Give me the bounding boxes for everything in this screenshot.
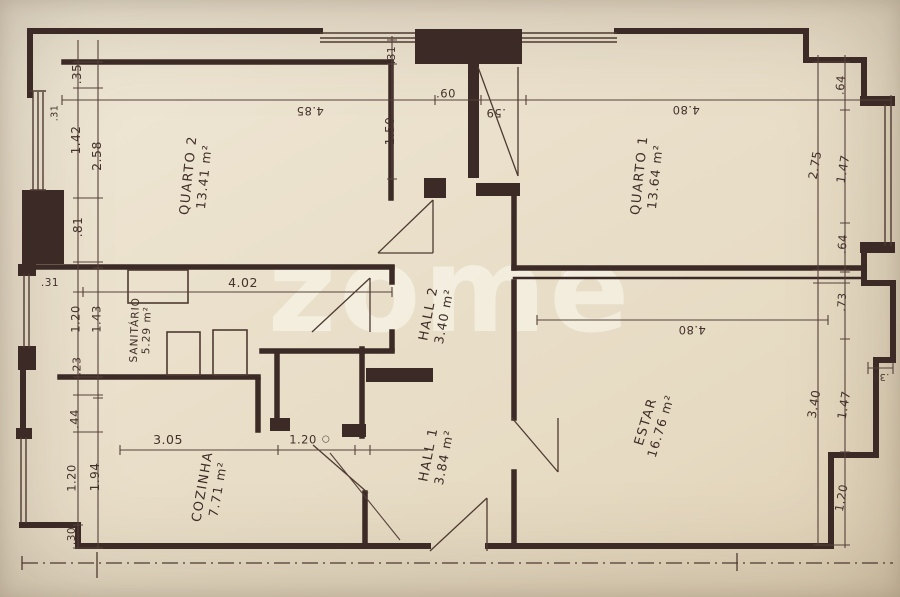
dim-mid-31: .31 — [387, 46, 398, 64]
door-quarto2 — [378, 200, 433, 253]
dim-estar-480: 4.80 — [678, 323, 706, 335]
dim-left-194: 1.94 — [89, 463, 101, 492]
dim-left-30: .30 — [67, 527, 78, 545]
dim-left-23: .23 — [72, 357, 83, 376]
dim-closet-120: 1.20 — [289, 434, 317, 446]
window-quarto1 — [885, 104, 891, 246]
dim-top-485: 4.85 — [296, 104, 324, 116]
dim-left-120b: 1.20 — [66, 464, 78, 492]
dim-top-59: .59 — [486, 106, 506, 118]
dim-left-81: .81 — [72, 217, 84, 238]
dim-right-64b: .64 — [837, 234, 850, 255]
door-estar — [512, 418, 558, 472]
door-cozinha — [313, 445, 368, 493]
dim-left-258: 2.58 — [91, 141, 104, 171]
outer-walls — [16, 29, 895, 546]
floor-plan-photo: zome ® — [0, 0, 900, 597]
dim-sanit-402: 4.02 — [228, 277, 258, 290]
dim-left-35: .35 — [71, 64, 83, 85]
room-label-sanitario: SANITÁRIO 5.29 m² — [128, 297, 154, 363]
dim-left-31-sill: .31 — [50, 105, 60, 122]
circle-mark: ○ — [322, 436, 330, 445]
dim-right-64a: .64 — [835, 75, 848, 96]
fixture-2 — [213, 330, 247, 375]
window-sanitario — [24, 274, 29, 348]
room-area: 5.29 m² — [140, 297, 154, 363]
dim-left-120a: 1.20 — [70, 305, 82, 333]
dim-top-480: 4.80 — [672, 103, 700, 115]
window-cozinha — [21, 437, 26, 523]
dim-left-143: 1.43 — [91, 305, 103, 333]
property-centerline — [22, 552, 893, 578]
door-sanitario — [312, 278, 370, 332]
door-entry — [430, 498, 487, 551]
dim-mid-150: 1.50 — [384, 117, 396, 146]
window-quarto2 — [30, 91, 46, 190]
dim-left-31b: .31 — [41, 278, 59, 289]
window-top-right — [522, 33, 617, 42]
door-quarto1 — [478, 67, 518, 176]
dim-left-44: .44 — [69, 409, 81, 429]
dim-left-142: 1.42 — [70, 126, 82, 155]
window-top-left — [320, 33, 415, 42]
dim-right-30: .30 — [873, 371, 890, 381]
dim-top-60: .60 — [436, 88, 456, 100]
dim-right-73: .73 — [836, 292, 848, 312]
dim-coz-305: 3.05 — [153, 434, 183, 447]
fixture-1 — [167, 332, 200, 375]
